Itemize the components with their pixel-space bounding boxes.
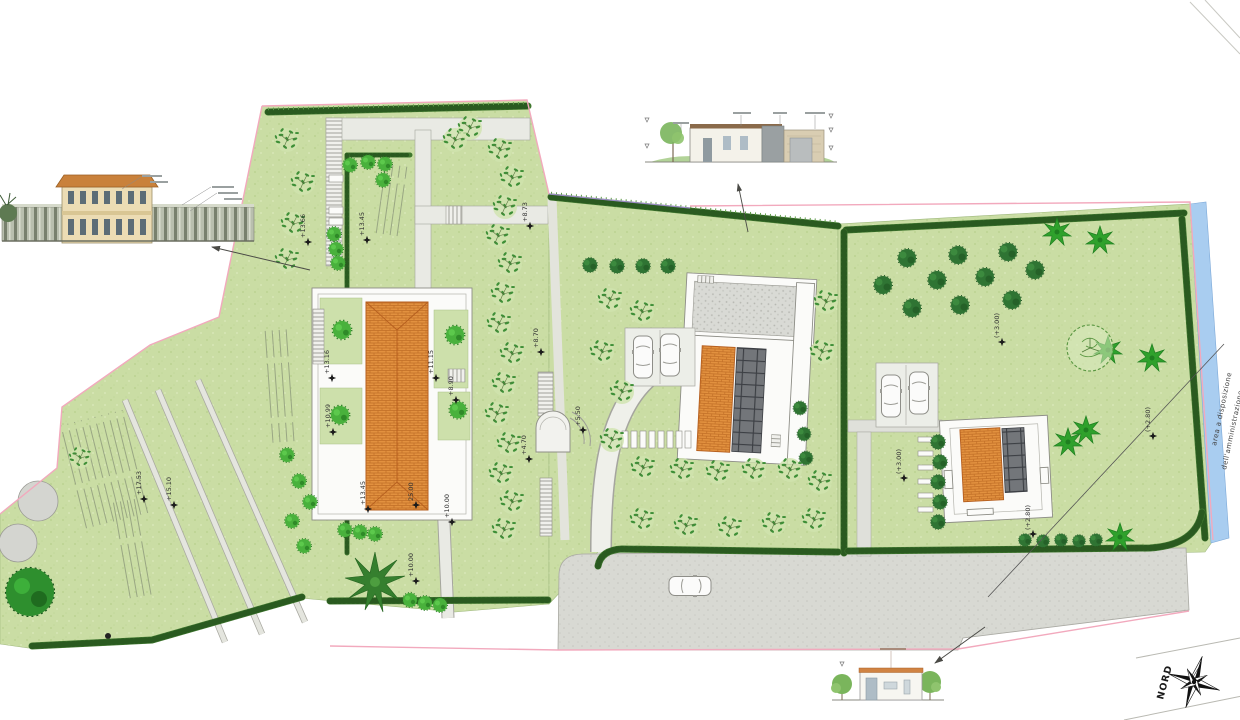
svg-text:+13.45: +13.45 xyxy=(359,481,367,505)
annotation-dashes xyxy=(142,175,242,200)
car-on-road xyxy=(669,575,711,597)
elevation-house-top xyxy=(645,112,837,162)
elevation-villa xyxy=(0,175,254,243)
svg-text:+11.15: +11.15 xyxy=(427,350,435,374)
svg-text:+15.10: +15.10 xyxy=(165,477,173,501)
svg-text:+13.16: +13.16 xyxy=(323,350,331,374)
gh2-roof xyxy=(960,428,1004,502)
stairs-cross xyxy=(446,206,462,224)
annotation-dashes xyxy=(673,112,825,124)
gh1-roof xyxy=(697,346,735,453)
svg-text:(+3.00): (+3.00) xyxy=(895,449,903,474)
car xyxy=(659,334,681,376)
site-plan-sheet: area a disposizione dell'amministrazione… xyxy=(0,0,1240,720)
car xyxy=(908,372,930,414)
compass-rose: NORD xyxy=(1124,638,1240,720)
svg-text:+8.73: +8.73 xyxy=(521,202,529,222)
north-label: NORD xyxy=(1155,664,1175,701)
car xyxy=(632,336,654,378)
car xyxy=(880,375,902,417)
guesthouse-1 xyxy=(677,273,817,466)
gravel-terrace xyxy=(692,281,808,337)
gh1-solar-panels xyxy=(732,348,766,453)
gh1-stairs xyxy=(771,434,781,446)
svg-text:+10.00: +10.00 xyxy=(407,553,415,577)
svg-text:+13.66: +13.66 xyxy=(299,214,307,238)
svg-text:+17.53: +17.53 xyxy=(135,471,143,495)
svg-text:+4.70: +4.70 xyxy=(520,435,528,455)
big-outlined-tree xyxy=(1067,325,1113,371)
svg-text:(+2.80): (+2.80) xyxy=(1024,505,1032,530)
svg-text:+10.99: +10.99 xyxy=(324,404,332,428)
terrace-stairs xyxy=(698,275,714,283)
svg-text:(+3.00): (+3.00) xyxy=(993,313,1001,338)
svg-text:(+2.80): (+2.80) xyxy=(1144,407,1152,432)
annotation-dash xyxy=(880,648,906,650)
svg-text:+5.50: +5.50 xyxy=(574,406,582,426)
svg-text:+8.70: +8.70 xyxy=(532,328,540,348)
svg-text:25.00: 25.00 xyxy=(407,482,415,501)
svg-text:+13.45: +13.45 xyxy=(358,212,366,236)
guesthouse-2 xyxy=(939,415,1052,523)
svg-text:+8.90: +8.90 xyxy=(447,376,455,396)
site-plan-canvas: area a disposizione dell'amministrazione… xyxy=(0,0,1240,720)
svg-text:+10.00: +10.00 xyxy=(443,494,451,518)
elevation-house-bottom xyxy=(831,648,944,700)
access-path-v xyxy=(857,432,871,556)
survey-dot xyxy=(105,633,111,639)
main-road xyxy=(558,548,1189,650)
sheet-corner-lines xyxy=(1190,0,1240,54)
gh2-solar-panels xyxy=(1002,427,1027,492)
